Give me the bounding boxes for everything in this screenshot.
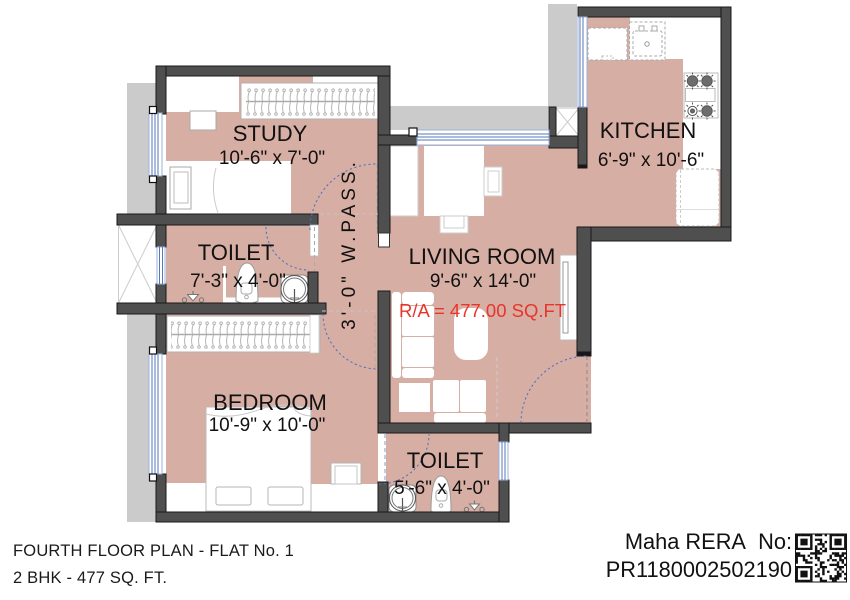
svg-text:STUDY: STUDY: [233, 121, 308, 146]
svg-text:FOURTH FLOOR PLAN - FLAT No. 1: FOURTH FLOOR PLAN - FLAT No. 1: [13, 542, 294, 560]
svg-text:5'-6" x 4'-0": 5'-6" x 4'-0": [394, 478, 490, 499]
svg-text:Maha RERA No:: Maha RERA No:: [625, 529, 792, 554]
svg-text:TOILET: TOILET: [198, 240, 275, 265]
svg-text:PR1180002502190: PR1180002502190: [606, 557, 792, 582]
svg-text:3'-0" W.PASS.: 3'-0" W.PASS.: [339, 158, 360, 330]
svg-text:LIVING ROOM: LIVING ROOM: [409, 244, 556, 269]
svg-text:2 BHK - 477 SQ. FT.: 2 BHK - 477 SQ. FT.: [13, 569, 167, 587]
svg-text:10'-9" x 10'-0": 10'-9" x 10'-0": [209, 415, 326, 436]
svg-text:9'-6" x 14'-0": 9'-6" x 14'-0": [430, 271, 536, 292]
svg-text:TOILET: TOILET: [407, 448, 484, 473]
svg-text:BEDROOM: BEDROOM: [213, 390, 327, 415]
svg-text:7'-3" x 4'-0": 7'-3" x 4'-0": [190, 271, 286, 292]
svg-text:6'-9" x 10'-6": 6'-9" x 10'-6": [598, 150, 704, 171]
svg-text:10'-6" x 7'-0": 10'-6" x 7'-0": [219, 148, 325, 169]
svg-text:R/A = 477.00 SQ.FT: R/A = 477.00 SQ.FT: [399, 300, 566, 321]
svg-text:KITCHEN: KITCHEN: [600, 118, 697, 143]
